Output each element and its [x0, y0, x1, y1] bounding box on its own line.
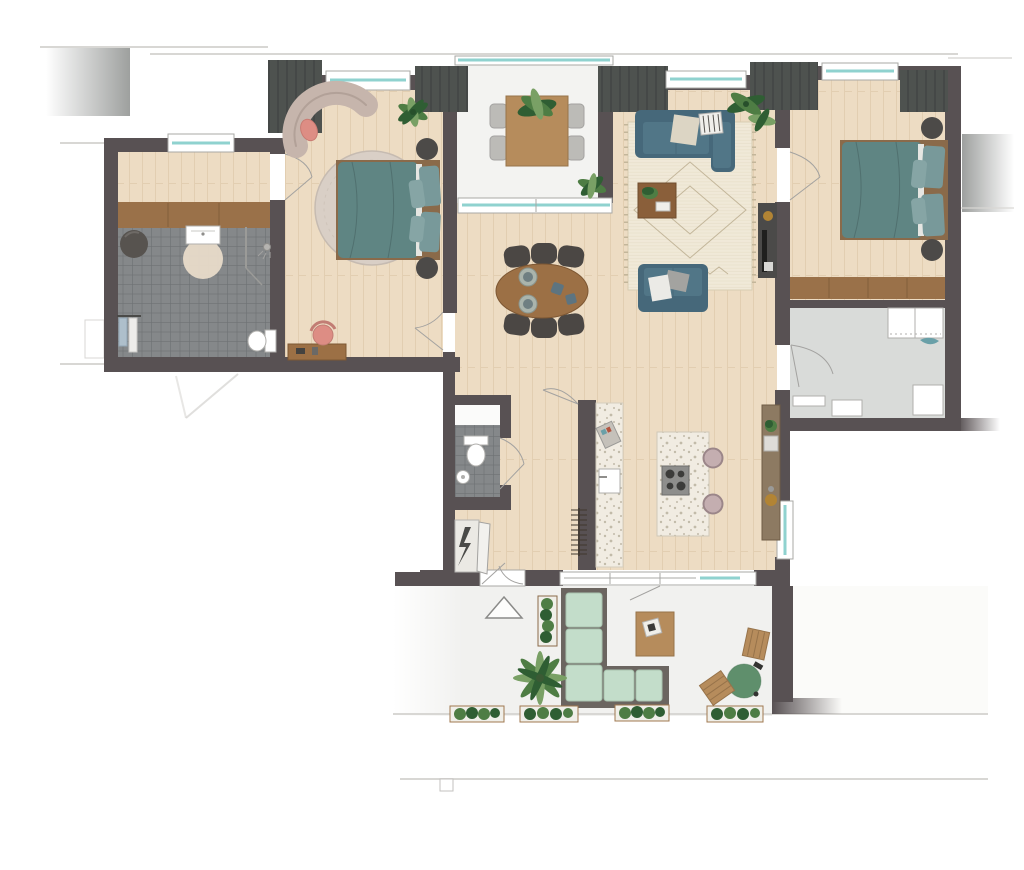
pillow-small — [911, 159, 928, 188]
sofa-loveseat — [638, 264, 708, 312]
dining-chair — [531, 243, 557, 264]
sofa-cushion — [604, 670, 634, 701]
storage-box — [793, 396, 825, 406]
tv-cabinet — [758, 203, 777, 278]
bedroom-2-window — [822, 63, 898, 80]
hall-wardrobe — [118, 202, 270, 228]
washer — [913, 385, 943, 415]
nightstand — [416, 257, 438, 279]
towel — [119, 318, 127, 346]
masonry-pier — [598, 66, 668, 112]
bed — [840, 140, 948, 240]
dining-chair — [531, 317, 557, 338]
context-wall-stub-right — [958, 418, 1000, 431]
context-pier-left — [46, 48, 130, 116]
sofa-cushion — [566, 665, 602, 701]
room-entry-hall — [118, 202, 270, 228]
bar-stool — [704, 449, 723, 468]
dining-table — [496, 264, 588, 318]
masonry-pier — [900, 70, 948, 112]
storage-box — [832, 400, 862, 416]
loggia-chair — [490, 136, 507, 160]
books — [656, 202, 670, 211]
loggia-chair — [567, 104, 584, 128]
speaker — [763, 211, 773, 221]
white-throw — [648, 274, 672, 301]
loggia-balustrade — [455, 56, 613, 65]
living-room-window — [666, 71, 746, 88]
bar-stool — [704, 495, 723, 514]
tall-cabinet-wall — [762, 405, 780, 540]
sofa-cushion — [636, 670, 662, 701]
context-pier-right — [962, 134, 1014, 212]
bathroom-stool — [120, 230, 148, 258]
outdoor-coffee-table — [636, 612, 674, 656]
throw-blanket — [670, 114, 700, 145]
kitchen-sink — [599, 469, 620, 493]
nightstand — [416, 138, 438, 160]
loggia-chair — [567, 136, 584, 160]
coffee-table — [638, 183, 676, 218]
room-meter-cupboard — [455, 520, 490, 574]
floor-plan-canvas — [0, 0, 1024, 870]
master-bed — [336, 160, 441, 260]
context-neighbour-door-swing — [186, 374, 238, 418]
hall-window — [168, 134, 234, 152]
pillow-small — [911, 197, 928, 224]
striped-pillow — [699, 112, 723, 135]
toilet-niche — [455, 405, 500, 425]
tall-planter — [538, 596, 557, 646]
loggia-chair — [490, 104, 507, 128]
pillow-small — [409, 215, 426, 242]
nightstand — [921, 239, 943, 261]
hob — [662, 466, 689, 495]
neighbour-terrace-floor — [793, 586, 988, 714]
terrace-edge-notch — [440, 779, 453, 791]
loggia-sliding-door — [458, 198, 612, 213]
palm-plant — [513, 651, 567, 705]
context-neighbour-niche — [85, 320, 104, 358]
bathroom-round-rug — [183, 239, 223, 279]
floor-plan-svg — [0, 0, 1024, 870]
bathroom-toilet — [248, 330, 276, 352]
towel — [129, 318, 137, 352]
desk-chair — [313, 325, 333, 345]
sofa-cushion — [566, 629, 602, 663]
nightstand — [921, 117, 943, 139]
room-toilet — [455, 405, 500, 497]
sofa-cushion — [566, 593, 602, 627]
bowl — [765, 494, 777, 506]
small-appliance — [764, 436, 778, 451]
